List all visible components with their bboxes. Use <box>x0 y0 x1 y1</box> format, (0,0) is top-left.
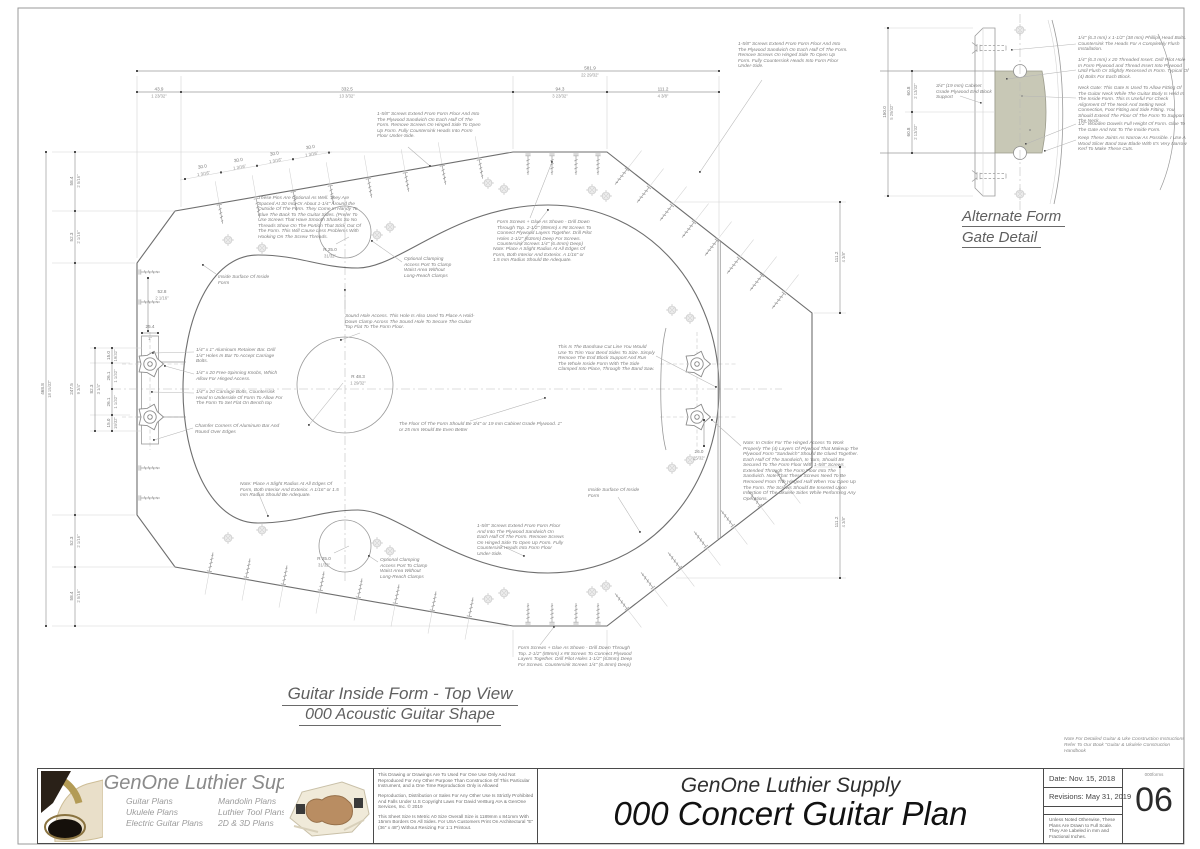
svg-text:332.5: 332.5 <box>341 87 353 92</box>
legal-paragraph: This Sheet Size Is Metric A0 Size Overal… <box>378 814 534 831</box>
form-photo <box>284 770 372 843</box>
svg-text:2 5/16": 2 5/16" <box>76 174 81 188</box>
annotation-note: Neck Gate: This Gate Is Used To Allow Fi… <box>1078 86 1190 125</box>
svg-text:43.9: 43.9 <box>155 87 164 92</box>
dim-left-inner: 82.33 1/4" 15.019/32" 26.11 1/32" 26.11 … <box>89 347 118 432</box>
main-drawing-caption: Guitar Inside Form - Top View 000 Acoust… <box>250 684 550 726</box>
svg-text:2 1/16": 2 1/16" <box>76 230 81 244</box>
plan-category: Ukulele Plans <box>126 807 203 818</box>
annotation-note: Note: In Order For The Hinged Access To … <box>743 441 859 502</box>
annotation-note: 3/4" (19 mm) Cabinet Grade Plywood End B… <box>936 84 992 101</box>
svg-text:R 25.0: R 25.0 <box>323 247 337 252</box>
divider <box>1043 814 1122 815</box>
annotation-note: This Is The Bandsaw Cut Line You Would U… <box>558 345 655 373</box>
svg-text:22 29/32": 22 29/32" <box>581 73 599 78</box>
dim-top-overall: 581.9 22 29/32" <box>136 66 720 78</box>
revisions-field: Revisions: May 31, 2019 <box>1049 792 1131 801</box>
annotation-note: 1/2" Wooden Dowels Full Height Of Form. … <box>1078 122 1190 133</box>
annotation-note: Note: Place A Slight Radius At All Edges… <box>240 482 343 499</box>
dim-top-row: 43.9 1 23/32" 332.5 13 3/32" 94.3 3 23/3… <box>136 87 720 99</box>
svg-text:52.8: 52.8 <box>158 289 167 294</box>
annotation-note: Sound Hole Access. This Hole Is Also Use… <box>345 314 476 331</box>
scale-note: Unless Noted Otherwise, These Plans Are … <box>1049 817 1119 840</box>
svg-text:2 1/16": 2 1/16" <box>76 534 81 548</box>
svg-text:60.8: 60.8 <box>906 127 911 136</box>
sheet-number: 06 <box>1123 781 1185 820</box>
annotation-note: Optional Clamping Access Port To Clamp W… <box>404 257 458 279</box>
radius-label-port-bottom: R 25.0 31/32" <box>317 546 349 568</box>
annotation-note: Note: Place A Slight Radius At All Edges… <box>493 247 588 264</box>
svg-text:4 3/8": 4 3/8" <box>658 94 669 99</box>
plan-category-col1: Guitar Plans Ukulele Plans Electric Guit… <box>126 796 203 829</box>
svg-text:58.4: 58.4 <box>69 591 74 600</box>
svg-text:25.4: 25.4 <box>146 324 155 329</box>
svg-text:2 1/16": 2 1/16" <box>155 296 169 301</box>
plan-category: Mandolin Plans <box>218 796 286 807</box>
book-reference-note: Note For Detailed Guitar & Uke Construct… <box>1064 737 1188 754</box>
svg-text:31/32": 31/32" <box>318 563 330 568</box>
radius-label-soundhole: R 48.3 1 29/32" <box>308 374 366 426</box>
svg-text:19/32": 19/32" <box>113 349 118 361</box>
svg-text:2 13/32": 2 13/32" <box>913 83 918 99</box>
svg-text:468.8: 468.8 <box>40 383 45 395</box>
annotation-note: Keep These Joints As Narrow As Possible.… <box>1078 136 1190 153</box>
svg-text:15.0: 15.0 <box>106 418 111 427</box>
plan-category: 2D & 3D Plans <box>218 818 286 829</box>
svg-text:247.5: 247.5 <box>69 383 74 395</box>
svg-text:1 23/32": 1 23/32" <box>151 94 167 99</box>
svg-text:3 1/4": 3 1/4" <box>96 383 101 394</box>
svg-text:2 13/32": 2 13/32" <box>913 124 918 140</box>
dim-left-overall: 468.8 18 15/32" <box>40 151 52 627</box>
annotation-note: Optional Clamping Access Port To Clamp W… <box>380 558 434 580</box>
legal-text: This Drawing or Drawings Are To Used For… <box>378 772 534 835</box>
annotation-note: Inside Surface Of Inside Form <box>218 275 274 286</box>
guitar-photo <box>41 771 103 842</box>
svg-text:1 3/16": 1 3/16" <box>305 150 319 157</box>
legal-paragraph: This Drawing or Drawings Are To Used For… <box>378 772 534 789</box>
line-art: 581.9 22 29/32" 43.9 1 23/32" 332.5 13 3… <box>0 0 1200 849</box>
annotation-note: Inside Surface Of Inside Form <box>588 488 644 499</box>
detail-caption: Alternate Form Gate Detail <box>962 208 1065 250</box>
annotation-note: The Floor Of The Form Should Be 3/4" or … <box>399 422 565 433</box>
svg-text:5 29/32": 5 29/32" <box>889 104 894 120</box>
svg-text:15.0: 15.0 <box>106 351 111 360</box>
main-caption-line2: 000 Acoustic Guitar Shape <box>299 706 501 726</box>
annotation-note: 1/4" x 20 Carriage Bolts, Countersink He… <box>196 390 286 407</box>
svg-text:82.3: 82.3 <box>89 384 94 393</box>
svg-text:111.2: 111.2 <box>834 251 839 262</box>
svg-text:111.2: 111.2 <box>834 516 839 527</box>
svg-text:26.1: 26.1 <box>106 397 111 406</box>
svg-text:1 3/16": 1 3/16" <box>269 157 283 164</box>
svg-text:31/32": 31/32" <box>324 254 336 259</box>
svg-text:R 48.3: R 48.3 <box>351 374 365 379</box>
svg-text:4 3/8": 4 3/8" <box>841 516 846 527</box>
gate-dims: 150.05 29/32" 60.82 13/32" 60.82 13/32" <box>882 27 995 197</box>
title-block: GenOne Luthier Supplies Guitar Plans Uku… <box>37 768 1184 844</box>
dim-pin-spacing: 30.01 3/16" 30.01 3/16" 30.01 3/16" 30.0… <box>184 143 330 180</box>
svg-text:3 23/32": 3 23/32" <box>552 94 568 99</box>
svg-text:30.0: 30.0 <box>306 144 316 151</box>
detail-caption-line1: Alternate Form <box>962 208 1065 227</box>
svg-text:94.3: 94.3 <box>556 87 565 92</box>
svg-text:1 1/32": 1 1/32" <box>113 369 118 383</box>
svg-text:1 3/16": 1 3/16" <box>233 163 247 170</box>
annotation-note: 1-5/8" Screws Extend From Form Floor And… <box>738 42 848 70</box>
svg-text:60.8: 60.8 <box>906 86 911 95</box>
svg-text:18 15/32": 18 15/32" <box>47 380 52 398</box>
svg-text:1 29/32": 1 29/32" <box>350 381 366 386</box>
svg-text:4 3/8": 4 3/8" <box>841 251 846 262</box>
divider <box>1043 806 1122 807</box>
svg-text:150.0: 150.0 <box>882 106 887 118</box>
legal-paragraph: Reproduction, Distribution or Sales For … <box>378 793 534 810</box>
drawing-sheet: 581.9 22 29/32" 43.9 1 23/32" 332.5 13 3… <box>0 0 1200 849</box>
plan-title: 000 Concert Guitar Plan <box>538 795 1043 833</box>
sheet-code: 000forms <box>1123 772 1185 777</box>
svg-text:1 3/16": 1 3/16" <box>197 170 211 177</box>
svg-text:52.3: 52.3 <box>69 232 74 241</box>
annotation-note: 1/4" x 20 Free-Spinning Knobs, Which All… <box>196 371 282 382</box>
svg-text:19/32": 19/32" <box>113 417 118 429</box>
svg-text:9 3/4": 9 3/4" <box>76 383 81 394</box>
annotation-note: Form Screws + Glue As Shown - Drill Down… <box>497 220 594 248</box>
annotation-note: Form Screws + Glue As Shown - Drill Down… <box>518 646 640 668</box>
annotation-note: 1/4" (6.3 mm) x 1-1/2" (38 mm) Phillips … <box>1078 36 1190 53</box>
svg-text:30.0: 30.0 <box>270 150 280 157</box>
svg-text:26.0: 26.0 <box>695 449 704 454</box>
svg-text:30.0: 30.0 <box>234 157 244 164</box>
detail-caption-line2: Gate Detail <box>962 229 1041 248</box>
svg-text:R 25.0: R 25.0 <box>317 556 331 561</box>
divider <box>1043 787 1122 788</box>
annotation-note: 1/4" x 1" Aluminum Retainer Bar. Drill 1… <box>196 348 282 365</box>
annotation-note: 1/4" (6.3 mm) x 20 Threaded Insert. Dril… <box>1078 58 1190 80</box>
screw-position-markers <box>222 177 696 605</box>
svg-text:25/32": 25/32" <box>693 456 705 461</box>
svg-text:52.3: 52.3 <box>69 536 74 545</box>
date-field: Date: Nov. 15, 2018 <box>1049 774 1115 783</box>
svg-text:2 5/16": 2 5/16" <box>76 589 81 603</box>
annotation-note: 1-5/8" Screws Extend From Form Floor And… <box>377 112 482 140</box>
annotation-note: Chamfer Corners Of Aluminum Bar And Roun… <box>195 424 281 435</box>
dim-left-row: 58.42 5/16" 52.32 1/16" 247.59 3/4" 52.3… <box>69 151 81 627</box>
main-caption-line1: Guitar Inside Form - Top View <box>282 684 519 706</box>
svg-text:26.1: 26.1 <box>106 371 111 380</box>
annotation-note: These Pins Are Optional As Well. They Ar… <box>258 196 361 241</box>
divider <box>373 769 374 843</box>
annotation-note: 1-5/8" Screws Extend From Form Floor And… <box>477 524 565 557</box>
svg-text:581.9: 581.9 <box>584 66 596 71</box>
svg-text:1 1/32": 1 1/32" <box>113 395 118 409</box>
svg-text:111.2: 111.2 <box>658 87 669 92</box>
svg-text:58.4: 58.4 <box>69 176 74 185</box>
svg-text:1": 1" <box>148 336 152 341</box>
plan-category: Electric Guitar Plans <box>126 818 203 829</box>
plan-category-col2: Mandolin Plans Luthier Tool Plans 2D & 3… <box>218 796 286 829</box>
plan-category: Guitar Plans <box>126 796 203 807</box>
svg-text:13 3/32": 13 3/32" <box>339 94 355 99</box>
dim-right-top: 111.24 3/8" <box>834 201 846 314</box>
svg-text:30.0: 30.0 <box>198 163 208 170</box>
plan-category: Luthier Tool Plans <box>218 807 286 818</box>
